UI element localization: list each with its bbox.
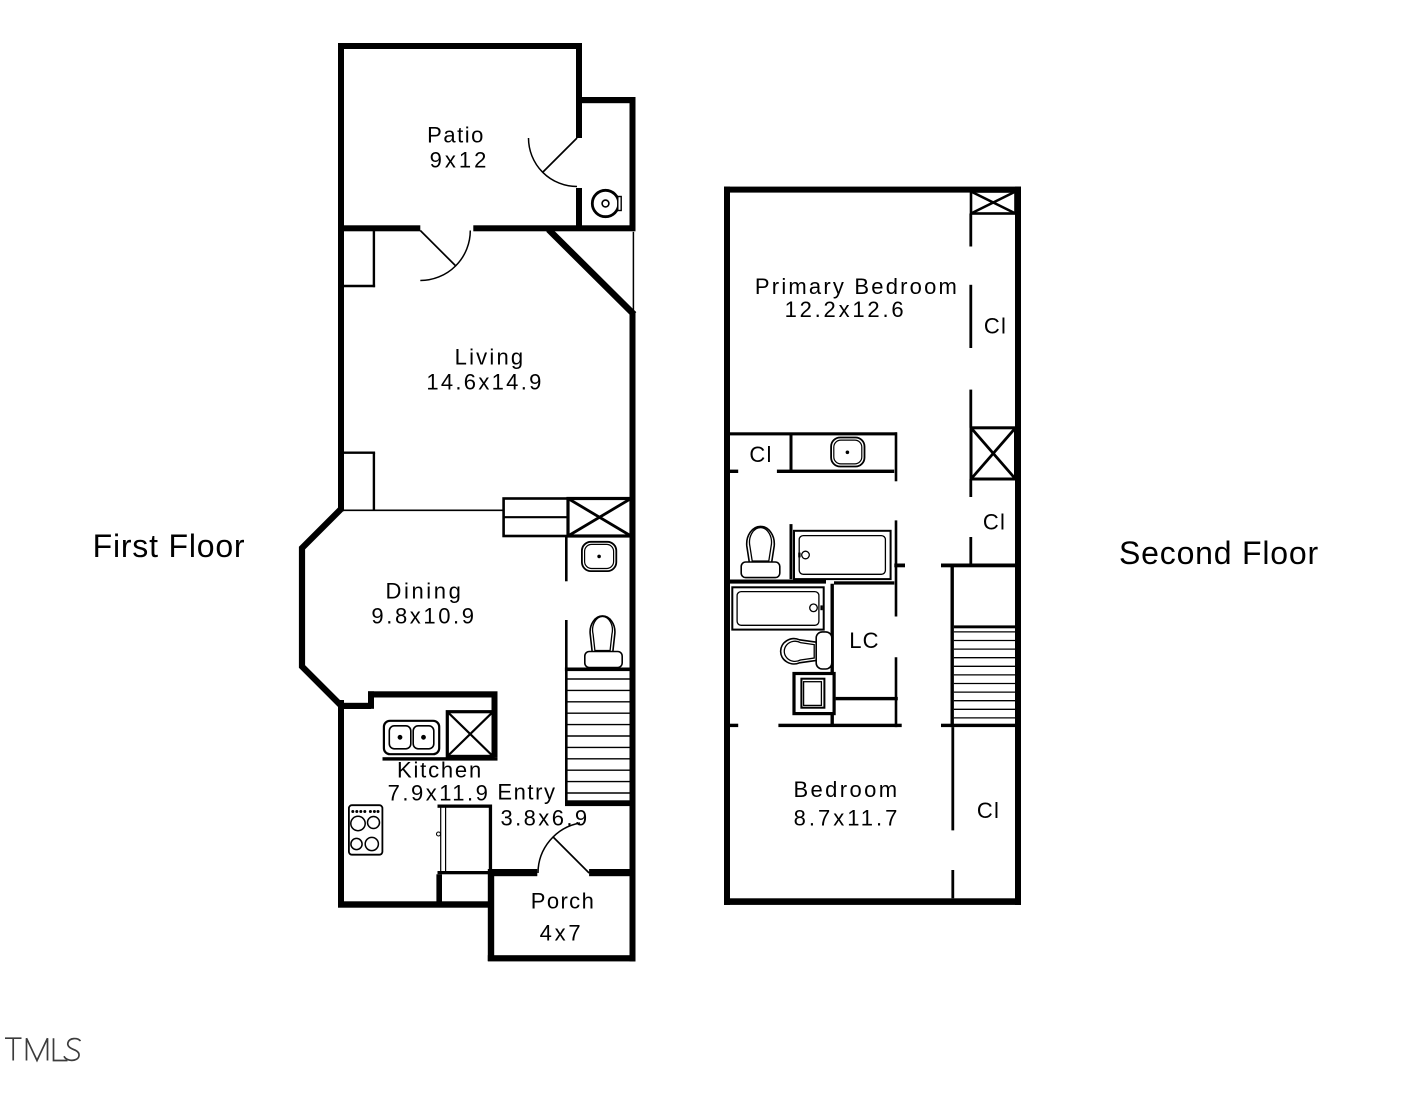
svg-text:Bedroom: Bedroom [793,777,899,802]
svg-text:Kitchen: Kitchen [397,758,483,783]
svg-text:Entry: Entry [497,780,556,805]
svg-text:Dining: Dining [386,579,464,604]
svg-text:LC: LC [849,628,880,653]
svg-text:Second Floor: Second Floor [1119,535,1319,571]
svg-text:9x12: 9x12 [430,148,490,173]
svg-text:7.9x11.9: 7.9x11.9 [388,781,491,806]
svg-text:Porch: Porch [531,889,595,914]
svg-text:Cl: Cl [984,314,1007,339]
svg-text:3.8x6.9: 3.8x6.9 [501,806,590,831]
svg-text:Cl: Cl [977,798,1000,823]
svg-text:4x7: 4x7 [540,921,584,946]
svg-text:Cl: Cl [749,442,772,467]
svg-text:First Floor: First Floor [93,528,246,564]
svg-text:Cl: Cl [983,510,1006,535]
svg-text:14.6x14.9: 14.6x14.9 [426,370,543,395]
svg-text:9.8x10.9: 9.8x10.9 [371,604,476,629]
svg-text:Living: Living [455,345,526,370]
svg-text:Patio: Patio [427,123,485,148]
svg-text:Primary Bedroom: Primary Bedroom [755,274,959,299]
svg-text:8.7x11.7: 8.7x11.7 [794,806,901,831]
svg-text:12.2x12.6: 12.2x12.6 [785,297,907,322]
